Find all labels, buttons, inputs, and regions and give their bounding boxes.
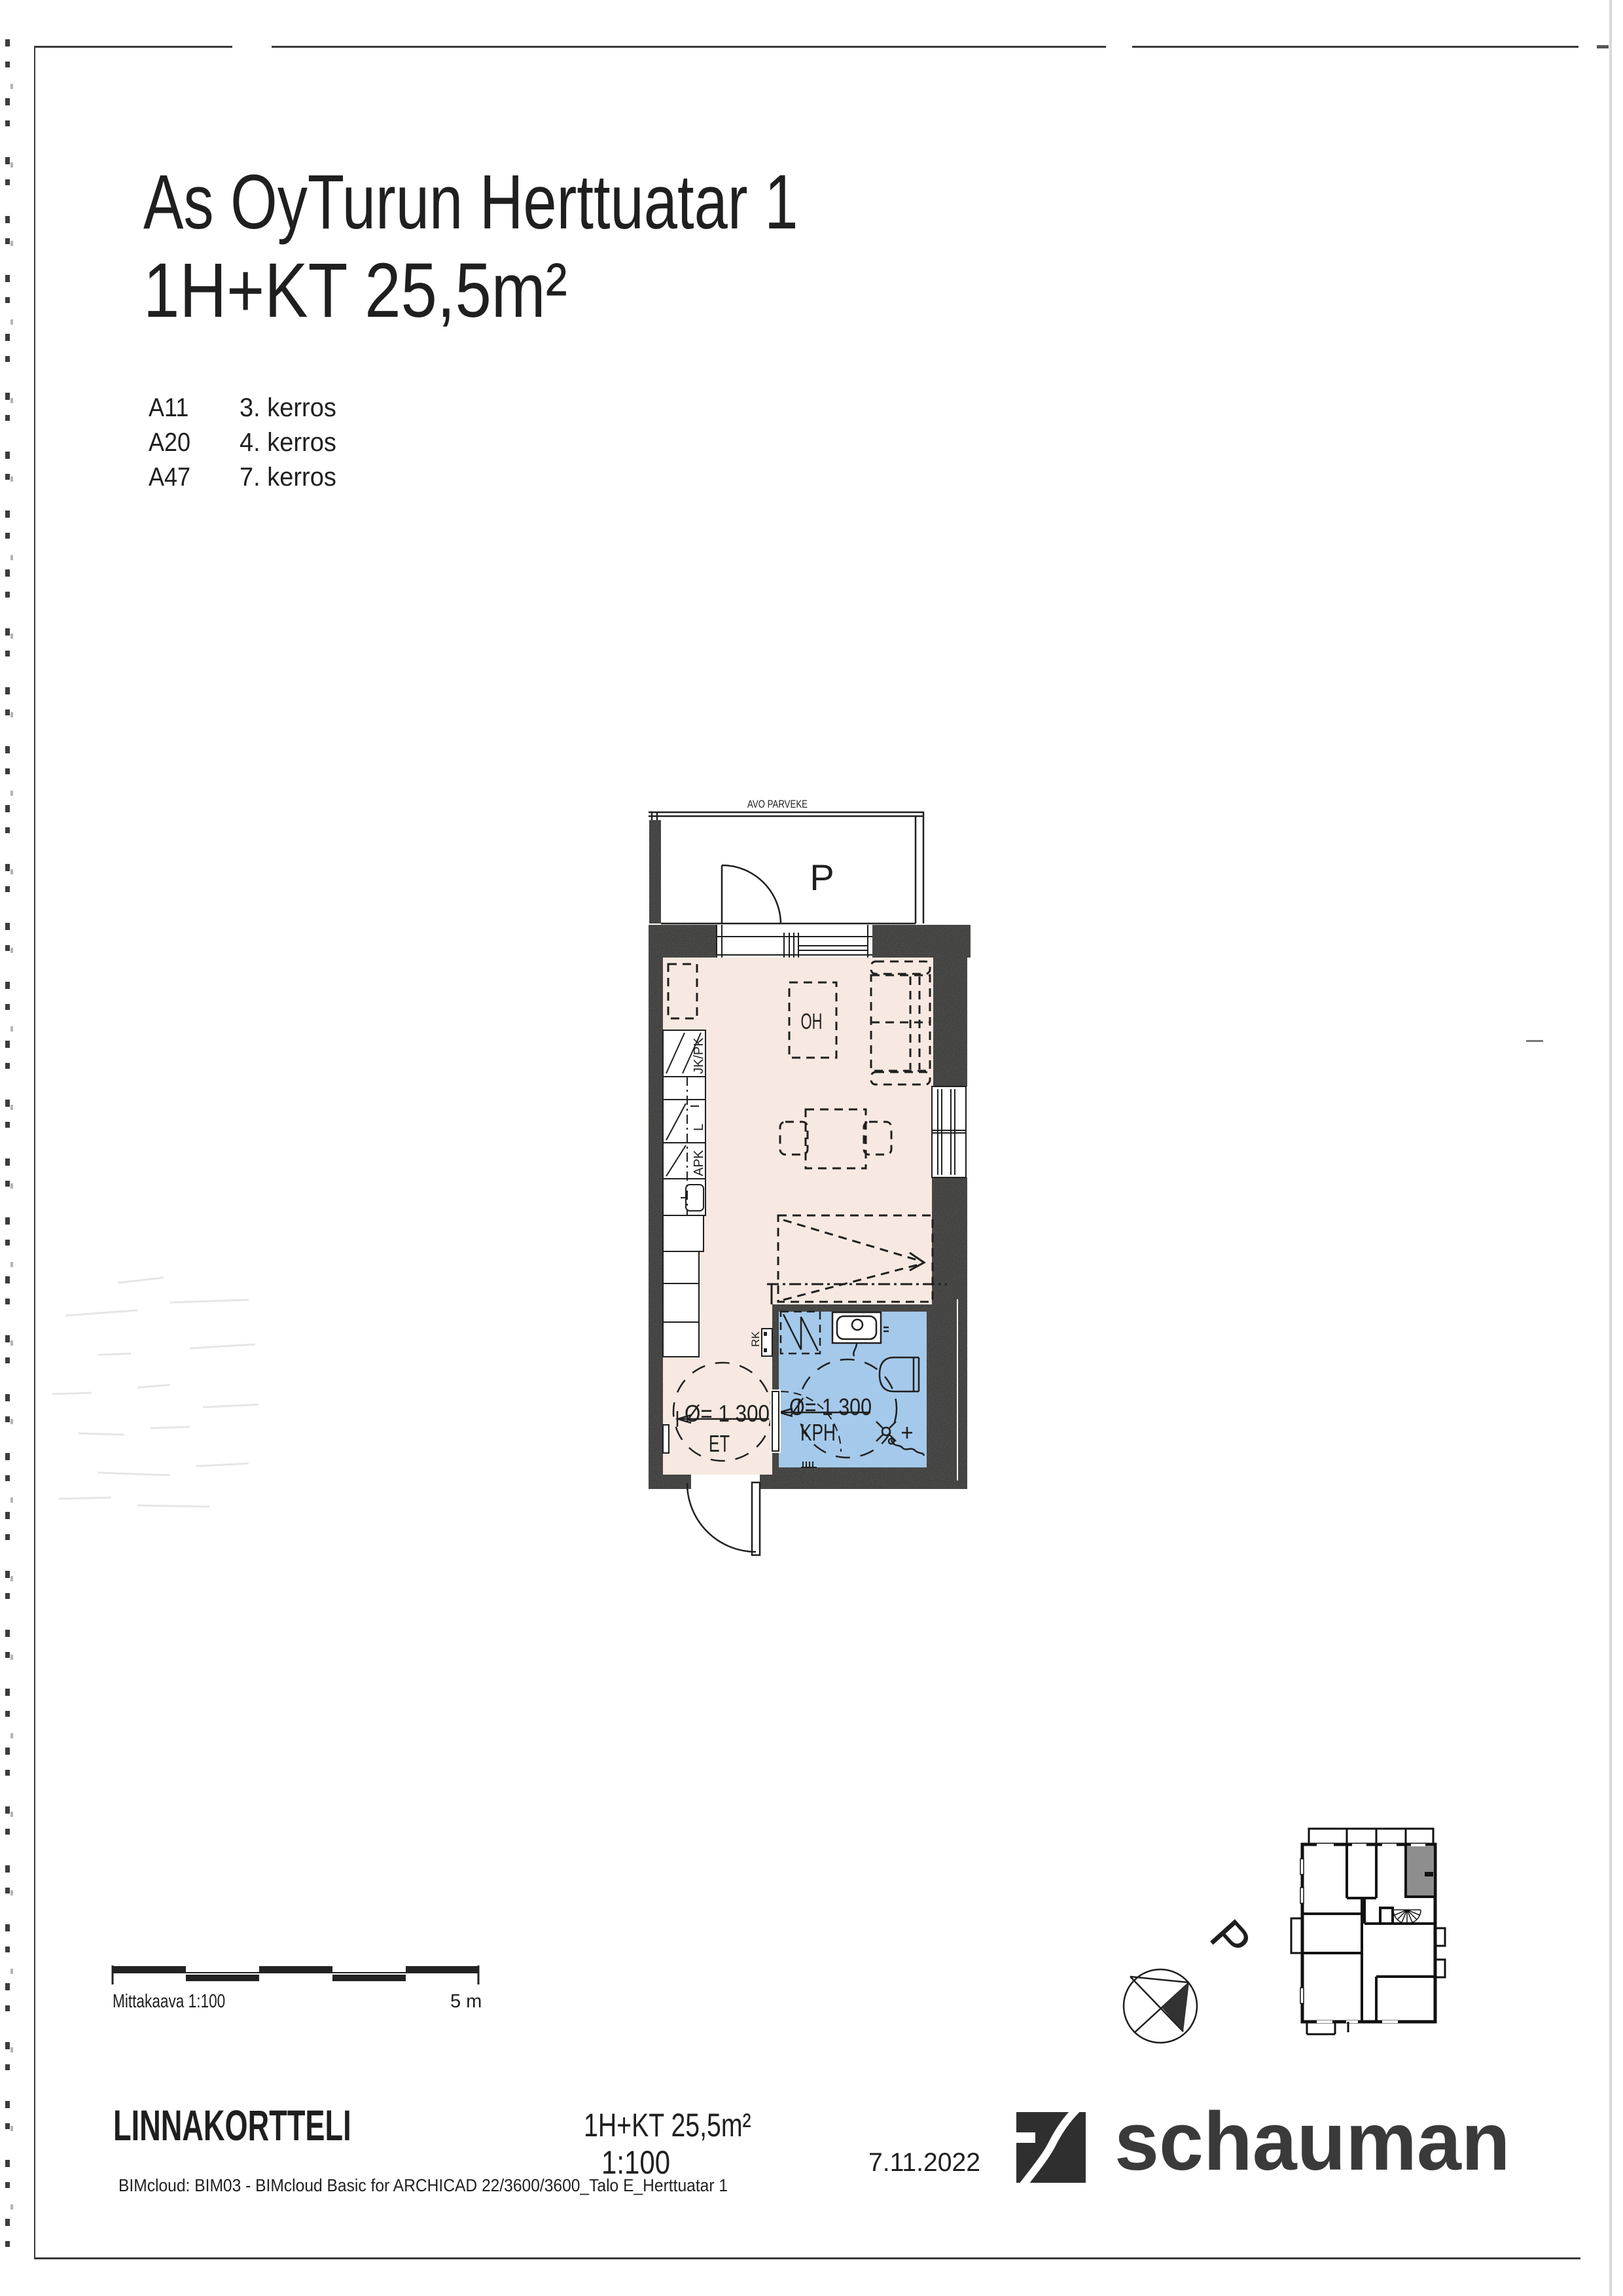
svg-text:JK/PK: JK/PK: [692, 1037, 706, 1074]
svg-text:AVO PARVEKE: AVO PARVEKE: [747, 798, 808, 810]
svg-text:ET: ET: [709, 1430, 730, 1457]
svg-text:P: P: [1200, 1909, 1262, 1969]
svg-text:P: P: [810, 857, 834, 898]
svg-text:Ø= 1 300: Ø= 1 300: [789, 1393, 872, 1420]
svg-text:RK: RK: [749, 1331, 762, 1347]
svg-text:APK: APK: [692, 1149, 706, 1176]
svg-text:Ø= 1 300: Ø= 1 300: [685, 1400, 770, 1427]
svg-text:OH: OH: [801, 1009, 823, 1034]
svg-text:L: L: [692, 1124, 706, 1131]
svg-text:KPH: KPH: [800, 1419, 836, 1446]
